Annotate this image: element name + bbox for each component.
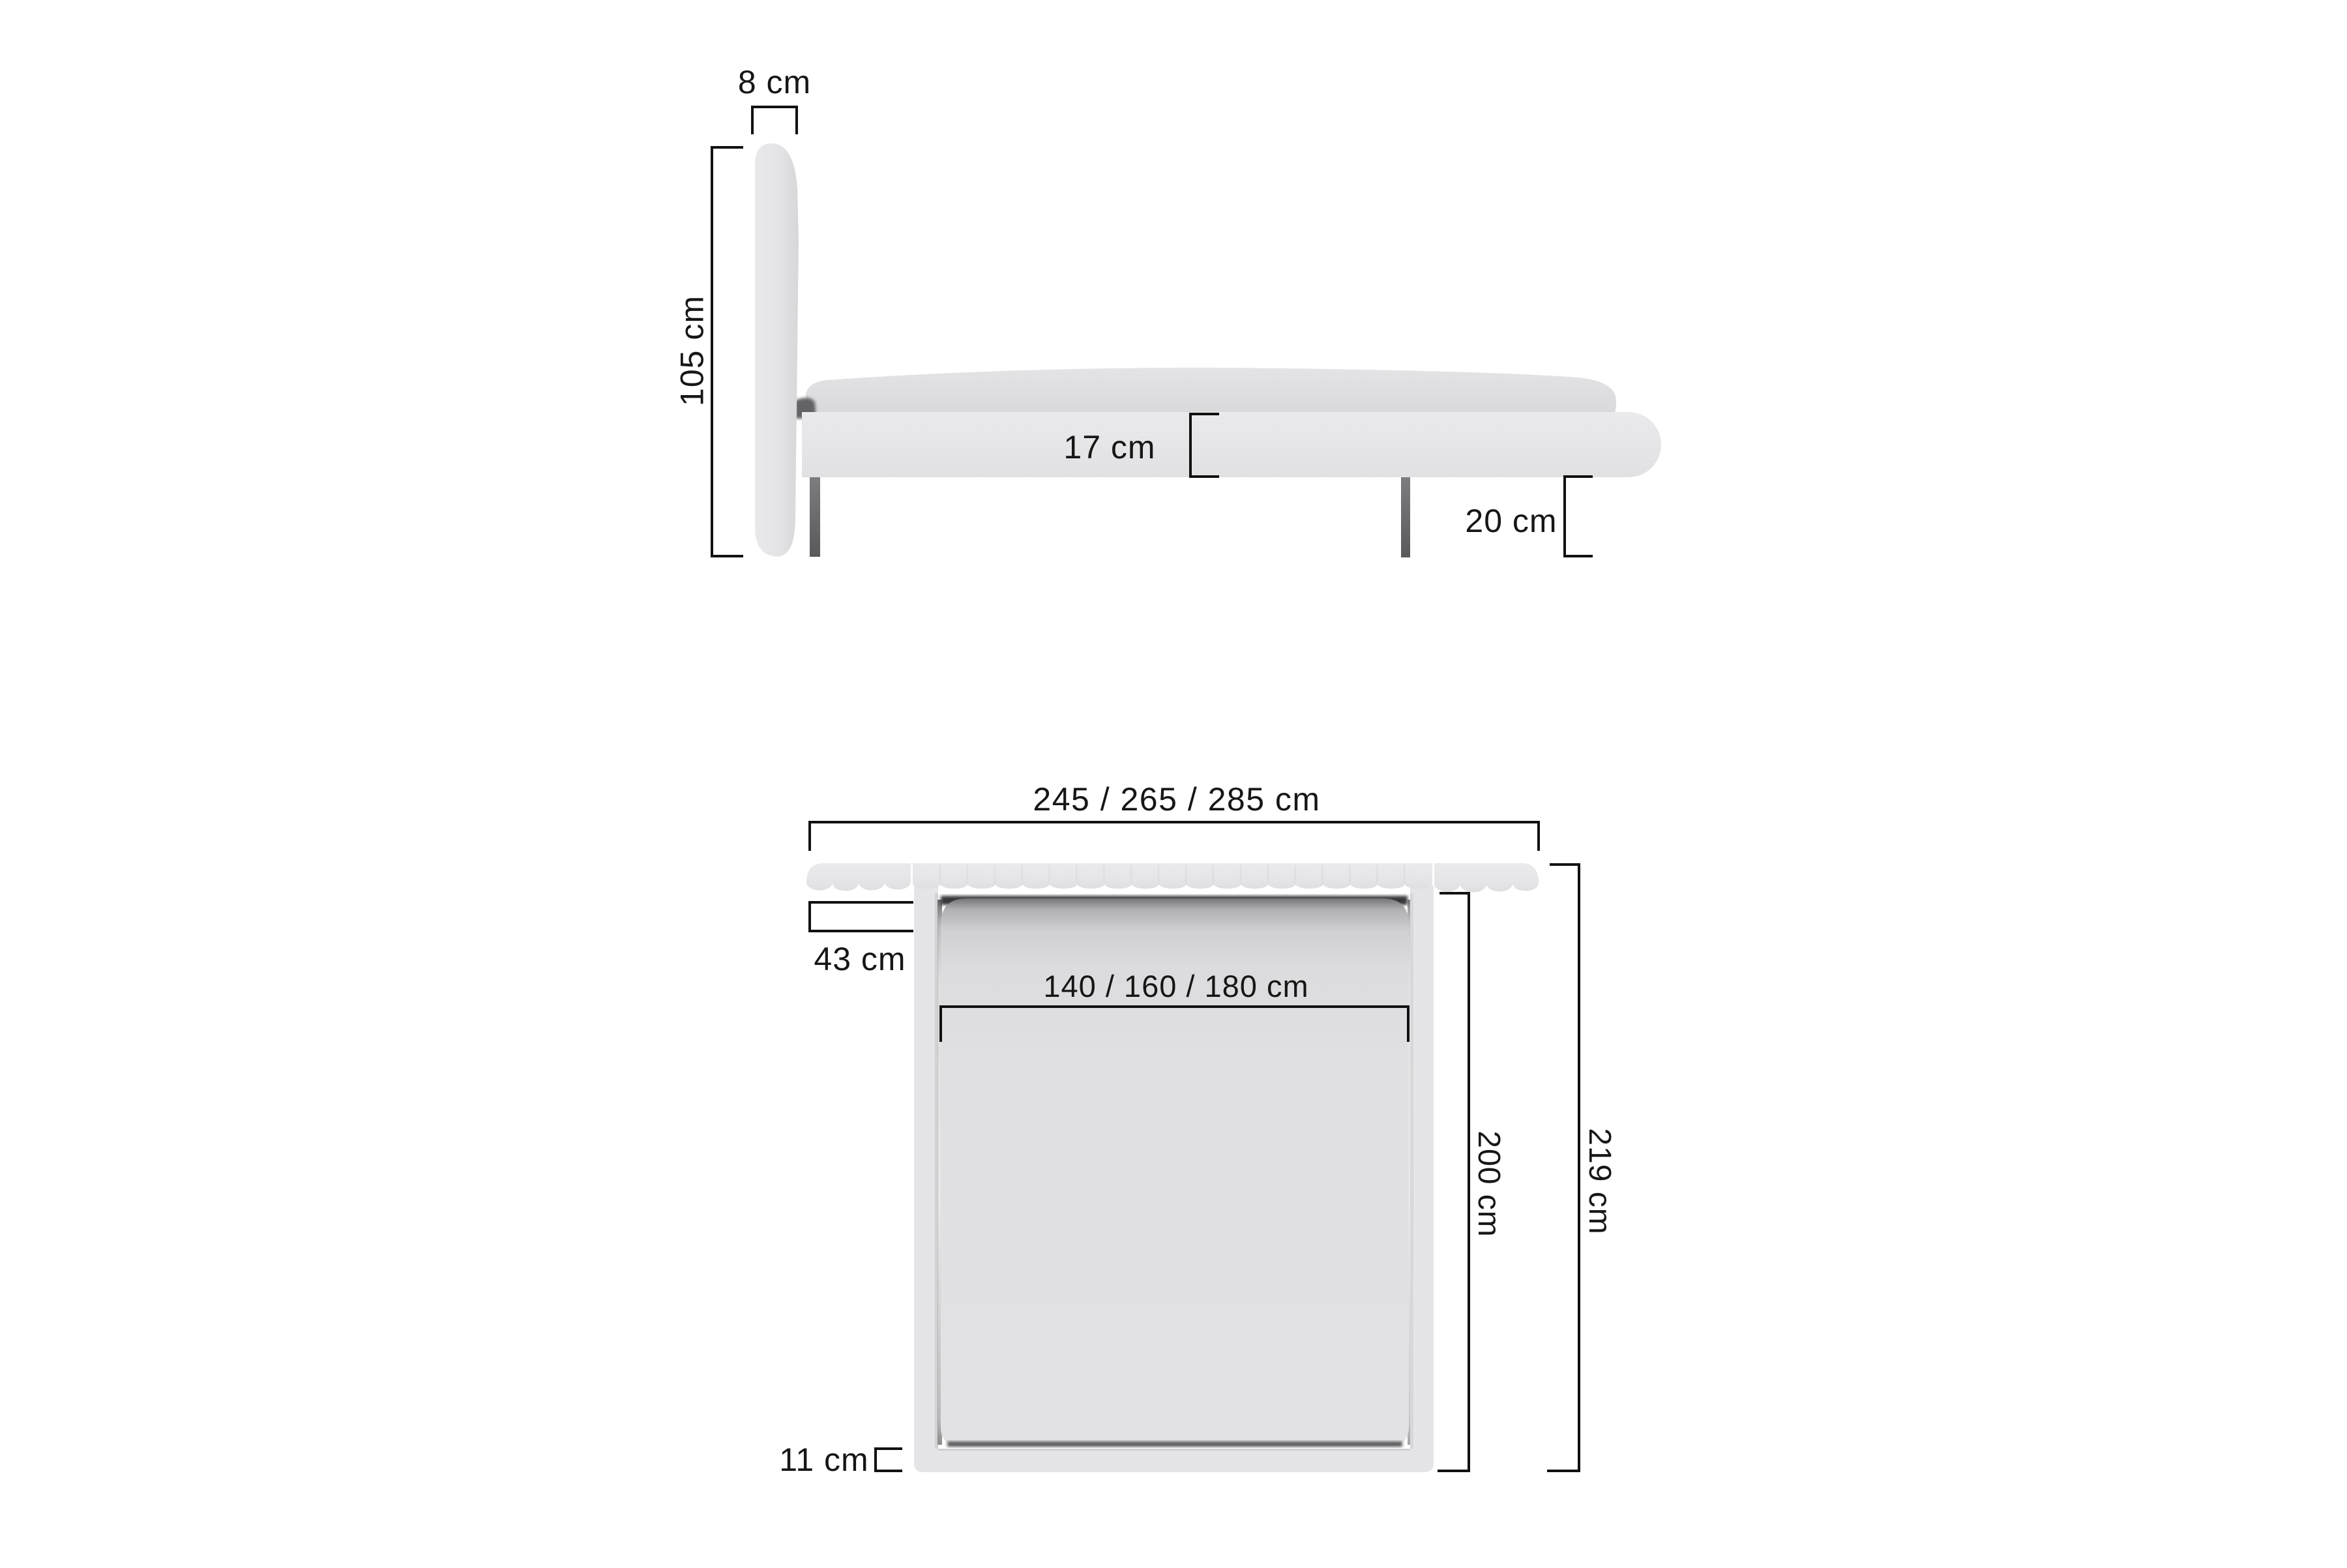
svg-text:11 cm: 11 cm <box>779 1442 868 1478</box>
svg-text:17 cm: 17 cm <box>1063 429 1155 466</box>
svg-text:43 cm: 43 cm <box>814 941 906 977</box>
svg-text:140 / 160 / 180 cm: 140 / 160 / 180 cm <box>1043 969 1308 1003</box>
svg-text:105 cm: 105 cm <box>674 295 711 406</box>
svg-text:8 cm: 8 cm <box>738 64 811 100</box>
svg-text:20 cm: 20 cm <box>1465 503 1557 539</box>
svg-text:200 cm: 200 cm <box>1471 1131 1506 1237</box>
svg-text:245 / 265 / 285 cm: 245 / 265 / 285 cm <box>1033 781 1320 818</box>
svg-text:219 cm: 219 cm <box>1582 1128 1617 1234</box>
